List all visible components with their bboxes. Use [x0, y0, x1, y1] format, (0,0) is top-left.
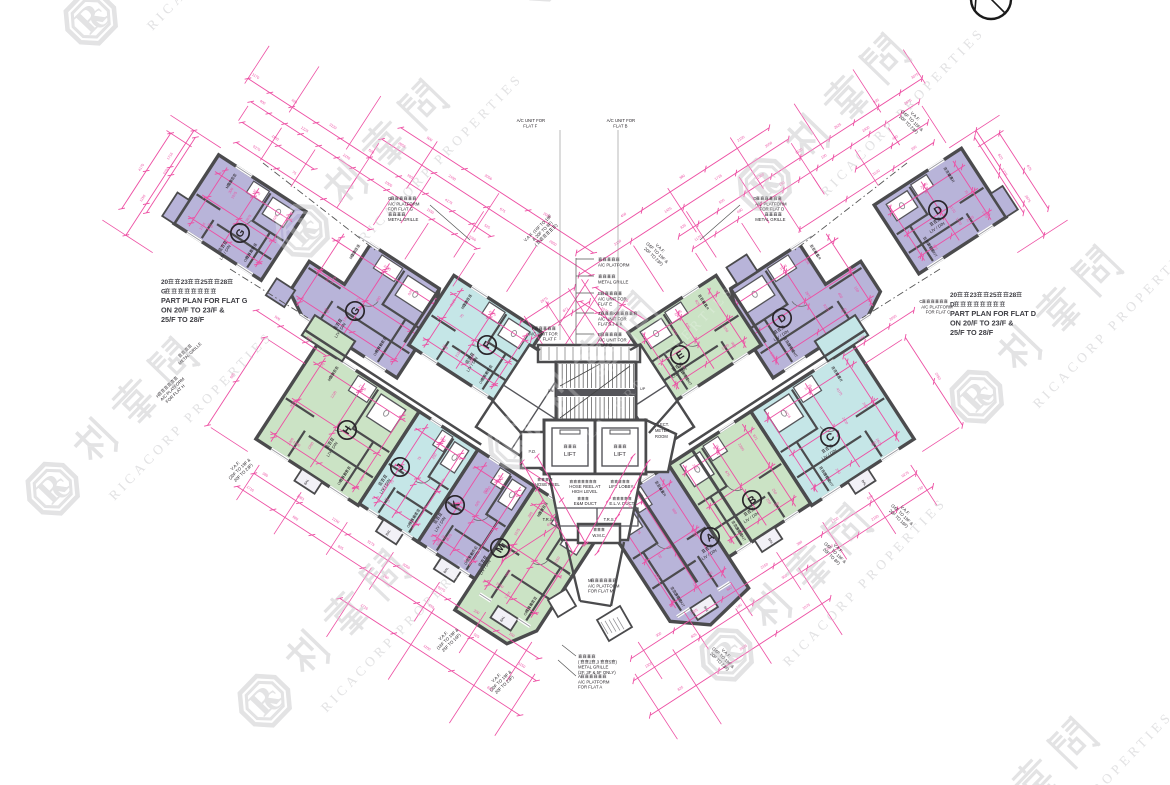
svg-text:20: 20: [950, 292, 958, 299]
svg-text:F: F: [532, 326, 535, 331]
svg-text:METAL GRILLE: METAL GRILLE: [598, 279, 628, 284]
svg-text:METAL GRILLE: METAL GRILLE: [755, 217, 785, 222]
svg-text:20: 20: [161, 279, 169, 286]
svg-text:,3: ,3: [596, 659, 600, 664]
svg-text:A/C PLATFORM: A/C PLATFORM: [598, 262, 630, 267]
svg-text:A/C UNIT FOR: A/C UNIT FOR: [598, 337, 627, 342]
svg-text:ROOM: ROOM: [655, 434, 668, 439]
svg-text:25: 25: [989, 292, 997, 299]
svg-text:23: 23: [181, 279, 189, 286]
svg-text:C: C: [919, 299, 922, 304]
svg-text:METER: METER: [655, 428, 669, 433]
svg-text:HIGH LEVEL: HIGH LEVEL: [572, 489, 598, 494]
svg-text:PART PLAN FOR FLAT D: PART PLAN FOR FLAT D: [950, 309, 1036, 318]
svg-text:HOSE REEL: HOSE REEL: [535, 482, 561, 487]
svg-text:23: 23: [970, 292, 978, 299]
svg-text:A/C PLATFORM: A/C PLATFORM: [921, 304, 953, 309]
svg-text:A: A: [578, 674, 581, 679]
svg-text:ON 20/F TO 23/F &: ON 20/F TO 23/F &: [161, 306, 225, 315]
svg-text:PART PLAN FOR FLAT G: PART PLAN FOR FLAT G: [161, 296, 248, 305]
svg-text:FLAT F: FLAT F: [523, 123, 537, 128]
svg-text:METAL GRILLE: METAL GRILLE: [578, 665, 608, 670]
svg-text:FOR FLAT M: FOR FLAT M: [588, 589, 614, 594]
svg-text:ON 20/F TO 23/F &: ON 20/F TO 23/F &: [950, 319, 1014, 328]
svg-text:25: 25: [200, 279, 208, 286]
svg-text:A/C UNIT FOR: A/C UNIT FOR: [598, 296, 627, 301]
svg-text:A/C UNIT FOR: A/C UNIT FOR: [607, 118, 636, 123]
svg-text:A/C UNIT FOR: A/C UNIT FOR: [517, 118, 546, 123]
svg-text:28: 28: [1009, 292, 1017, 299]
svg-text:FLAT E: FLAT E: [598, 302, 612, 307]
svg-text:FOR FLAT C: FOR FLAT C: [926, 310, 951, 315]
svg-text:25/F TO 28/F: 25/F TO 28/F: [950, 328, 994, 337]
svg-text:G: G: [161, 289, 166, 296]
svg-text:FLAT F: FLAT F: [543, 337, 557, 342]
svg-text:A/C PLATFORM: A/C PLATFORM: [578, 679, 610, 684]
svg-text:FOR FLAT A: FOR FLAT A: [578, 685, 602, 690]
svg-text:T.R.S.: T.R.S.: [604, 517, 615, 522]
svg-text:28: 28: [220, 279, 228, 286]
svg-text:A/C UNIT FOR: A/C UNIT FOR: [529, 331, 558, 336]
svg-text:E: E: [598, 291, 601, 296]
svg-text:25/F TO 28/F: 25/F TO 28/F: [161, 315, 205, 324]
svg-text:LIFT LOBBY: LIFT LOBBY: [609, 484, 634, 489]
svg-text:W.M.C.: W.M.C.: [592, 533, 606, 538]
svg-text:LIFT: LIFT: [614, 452, 626, 458]
svg-text:E&M DUCT: E&M DUCT: [574, 501, 597, 506]
svg-text:FLAT B: FLAT B: [613, 123, 627, 128]
svg-text:(2F, 3F & 5F ONLY): (2F, 3F & 5F ONLY): [578, 670, 616, 675]
svg-text:J: J: [598, 311, 600, 316]
